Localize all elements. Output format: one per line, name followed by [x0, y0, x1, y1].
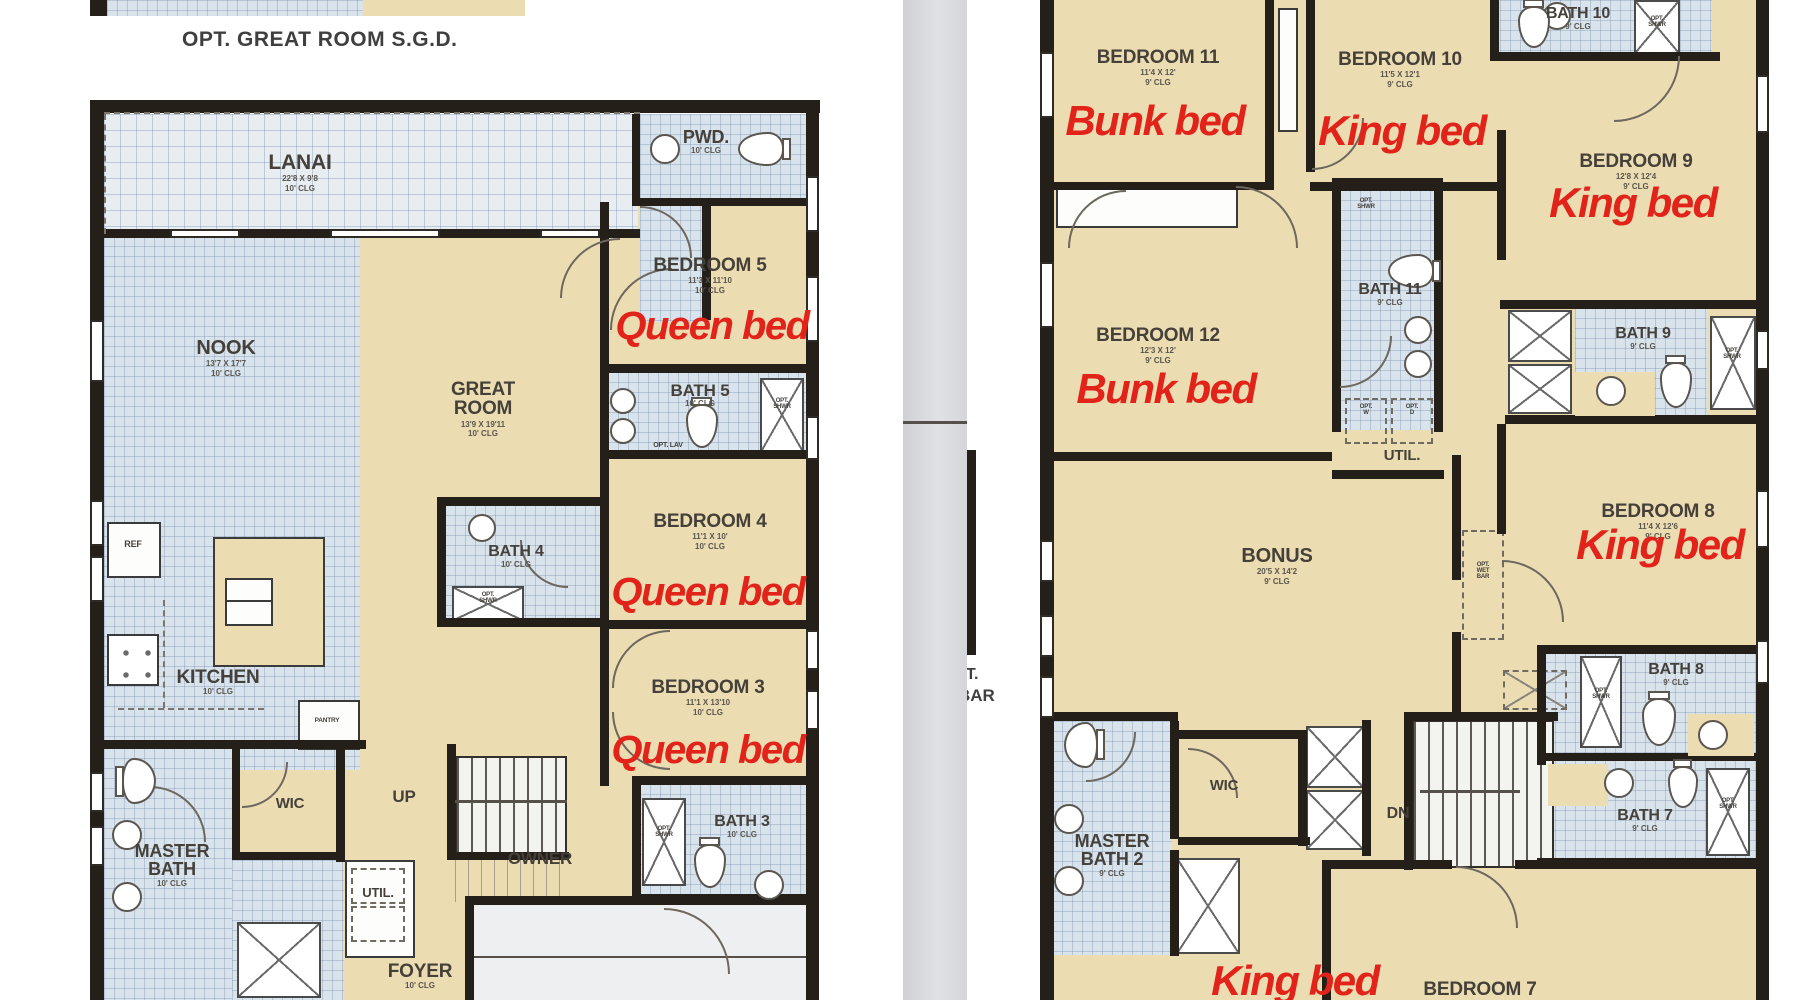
linen-closet: [1508, 310, 1572, 362]
divider-line: [903, 421, 967, 424]
wall: [240, 852, 340, 860]
room-label-opt-shwr-bath10: OPT. SHWR: [1648, 16, 1666, 28]
wall: [437, 497, 605, 506]
range: [107, 634, 159, 686]
wall: [600, 364, 806, 373]
wall: [600, 450, 806, 459]
room-label-opt-w: OPT. W: [1360, 404, 1373, 416]
wall: [1265, 0, 1274, 186]
hall-door: [1278, 8, 1298, 132]
attic-access: [1503, 670, 1567, 710]
wall: [632, 776, 806, 785]
bath7-counter: [1548, 764, 1608, 806]
room-label-opt-d: OPT. D: [1406, 404, 1419, 416]
divider-fragment-top: T.: [966, 666, 978, 684]
wall: [437, 618, 605, 627]
bath5-shower: [760, 378, 804, 452]
room-label-pantry: PANTRY: [315, 718, 340, 725]
bed-annotation-bed5-queen: Queen bed: [615, 306, 808, 346]
partial-room: [363, 0, 525, 16]
opt-wet-bar-box: [1462, 530, 1504, 640]
bath3-shower: [642, 798, 686, 886]
wall: [1537, 645, 1546, 765]
room-label-opt-wet-bar: OPT. WET BAR: [1477, 562, 1490, 580]
sink-icon: [468, 514, 496, 542]
wall: [336, 740, 345, 862]
wall: [1490, 52, 1720, 61]
room-label-opt-shwr-bath5: OPT. SHWR: [773, 398, 791, 410]
wall: [1040, 0, 1054, 1000]
wall: [1178, 837, 1310, 845]
wall: [1452, 455, 1461, 580]
bath8-shower: [1580, 656, 1622, 748]
lanai-screen: [104, 114, 106, 234]
room-label-up: UP: [392, 788, 415, 805]
window: [806, 176, 819, 232]
room-label-bath-5: BATH 510' CLG: [671, 382, 730, 408]
wall: [806, 100, 819, 1000]
wic2-closet: [1306, 726, 1364, 788]
wic2-closet: [1306, 790, 1364, 850]
window: [1756, 490, 1769, 548]
lanai-window: [540, 229, 600, 238]
wall: [437, 497, 446, 627]
window: [806, 416, 819, 460]
sink-icon: [1404, 316, 1432, 344]
divider-strip: [903, 0, 967, 1000]
divider-wall: [967, 450, 976, 655]
lanai-screen: [104, 112, 640, 114]
wall: [600, 502, 609, 786]
window: [90, 772, 104, 812]
stair-rail: [455, 800, 567, 803]
room-label-bedroom-10: BEDROOM 1011'5 X 12'19' CLG: [1338, 50, 1462, 89]
counter-line: [118, 708, 264, 710]
wall: [1332, 470, 1444, 479]
room-label-opt-shwr-bath8: OPT. SHWR: [1592, 688, 1610, 700]
wall: [1332, 178, 1341, 432]
wall: [1404, 712, 1413, 870]
room-label-opt-shwr-bath3: OPT. SHWR: [655, 826, 673, 838]
room-label-bedroom-11: BEDROOM 1111'4 X 12'9' CLG: [1097, 48, 1220, 87]
wall: [1322, 860, 1452, 869]
stair-rail: [1420, 790, 1520, 793]
counter-line: [163, 600, 165, 708]
window: [90, 320, 104, 382]
wall: [90, 0, 107, 16]
sink-icon: [610, 418, 636, 444]
window: [90, 826, 104, 866]
window: [1756, 75, 1769, 133]
bed-annotation-bed3-queen: Queen bed: [611, 730, 804, 770]
sink-icon: [1404, 350, 1432, 378]
room-label-bonus: BONUS20'5 X 14'29' CLG: [1241, 546, 1312, 586]
opt-great-room-note: OPT. GREAT ROOM S.G.D.: [182, 28, 457, 52]
room-label-bath-8: BATH 89' CLG: [1648, 662, 1703, 687]
sink-icon: [650, 134, 680, 164]
room-label-bath-11: BATH 119' CLG: [1358, 282, 1421, 307]
room-label-bedroom-7: BEDROOM 7: [1423, 980, 1536, 999]
window: [1040, 676, 1054, 718]
window: [806, 630, 819, 670]
room-label-bedroom-4: BEDROOM 411'1 X 10'10' CLG: [653, 512, 766, 551]
room-label-bedroom-5: BEDROOM 511'3 X 11'1010' CLG: [653, 256, 766, 295]
wall: [232, 748, 240, 860]
room-label-bath-9: BATH 99' CLG: [1615, 326, 1670, 351]
bed-annotation-bed4-queen: Queen bed: [611, 572, 804, 612]
room-label-bath-4: BATH 410' CLG: [488, 544, 543, 569]
bath7-shower: [1706, 768, 1750, 856]
up-stairs: [455, 756, 567, 856]
room-label-opt-lav: OPT. LAV: [653, 442, 682, 449]
master2-shower: [1176, 858, 1240, 954]
bed-annotation-master2-king: King bed: [1211, 960, 1379, 1000]
refrigerator: [107, 522, 161, 578]
bed-annotation-bed10-king: King bed: [1318, 110, 1486, 152]
room-label-bath-3: BATH 310' CLG: [714, 814, 769, 839]
linen-closet: [1508, 364, 1572, 414]
bath9-shower: [1710, 316, 1756, 410]
sink-icon: [1604, 768, 1634, 798]
sink-icon: [1054, 804, 1084, 834]
sink-icon: [1596, 376, 1626, 406]
room-label-great-room: GREAT ROOM13'9 X 19'1110' CLG: [451, 380, 515, 438]
window: [90, 556, 104, 602]
partial-room-tile: [107, 0, 363, 16]
window: [90, 500, 104, 546]
wall: [1505, 415, 1756, 424]
wall: [1452, 632, 1461, 717]
wall: [1178, 730, 1306, 739]
room-label-nook: NOOK13'7 X 17'710' CLG: [196, 338, 255, 378]
bed-annotation-bed9-king: King bed: [1549, 182, 1717, 224]
room-label-bath-10: BATH 109' CLG: [1546, 6, 1610, 31]
room-label-foyer: FOYER10' CLG: [388, 962, 452, 991]
lanai-floor: [104, 114, 638, 234]
island-sink: [225, 600, 273, 626]
wall: [632, 776, 641, 898]
window: [1756, 640, 1769, 684]
room-label-master-bath-2: MASTER BATH 29' CLG: [1075, 832, 1150, 878]
window: [1756, 330, 1769, 370]
wall: [465, 896, 806, 905]
room-label-lanai: LANAI22'8 X 9'810' CLG: [268, 152, 331, 193]
wall: [1362, 720, 1371, 856]
wall: [1170, 850, 1179, 956]
room-label-util: UTIL.: [362, 886, 394, 899]
room-label-ref: REF: [124, 540, 141, 549]
wall: [1497, 424, 1506, 534]
bed-annotation-bed8-king: King bed: [1576, 524, 1744, 566]
wall: [1515, 860, 1758, 869]
room-label-opt-shwr-bath4: OPT. SHWR: [479, 592, 497, 604]
room-label-opt-shwr-bath11: OPT. SHWR: [1357, 198, 1375, 210]
wall: [1298, 730, 1307, 846]
room-label-pwd: PWD.10' CLG: [683, 128, 729, 156]
bed-annotation-bed12-bunk: Bunk bed: [1076, 368, 1255, 410]
window: [806, 690, 819, 730]
window: [1040, 615, 1054, 657]
master-shower: [237, 922, 321, 998]
wall: [1434, 178, 1443, 432]
sink-icon: [754, 870, 784, 900]
bed-annotation-bed11-bunk: Bunk bed: [1065, 100, 1244, 142]
wall: [1500, 300, 1756, 309]
wall: [600, 620, 806, 629]
garage-area: [473, 904, 806, 1000]
wall: [1537, 645, 1757, 654]
room-label-owner: OWNER: [508, 850, 572, 867]
wall: [1052, 712, 1178, 721]
wall: [1490, 0, 1499, 60]
room-label-opt-shwr-bath9: OPT. SHWR: [1723, 348, 1741, 360]
lanai-window: [330, 229, 440, 238]
window: [1040, 52, 1054, 118]
room-label-wic-2: WIC: [1210, 778, 1239, 793]
room-label-opt-shwr-bath7: OPT. SHWR: [1719, 798, 1737, 810]
sink-icon: [610, 388, 636, 414]
room-label-bath-7: BATH 79' CLG: [1617, 808, 1672, 833]
wall: [1497, 130, 1506, 260]
sink-icon: [1698, 720, 1728, 750]
room-label-kitchen: KITCHEN10' CLG: [176, 668, 259, 697]
room-label-util-2: UTIL.: [1384, 448, 1421, 463]
window: [1040, 262, 1054, 328]
dn-stairs: [1412, 720, 1554, 868]
lanai-window: [170, 229, 240, 238]
room-label-bedroom-3: BEDROOM 311'1 X 13'1010' CLG: [651, 678, 764, 717]
floor-plan-canvas: OPT. GREAT ROOM S.G.D. T. BAR LANAI22'8 …: [0, 0, 1800, 1000]
room-label-dn: DN: [1387, 806, 1410, 822]
room-label-master-bath: MASTER BATH10' CLG: [135, 842, 210, 888]
opt-dryer: [351, 906, 405, 942]
wall: [1404, 712, 1558, 721]
wall: [1052, 452, 1332, 461]
wall: [465, 896, 474, 1000]
wall: [1332, 178, 1436, 187]
garage-line: [473, 956, 806, 958]
wall: [632, 114, 640, 202]
room-label-wic: WIC: [276, 796, 305, 811]
wall: [632, 198, 806, 206]
room-label-bedroom-12: BEDROOM 1212'3 X 12'9' CLG: [1096, 326, 1220, 365]
window: [1040, 540, 1054, 582]
